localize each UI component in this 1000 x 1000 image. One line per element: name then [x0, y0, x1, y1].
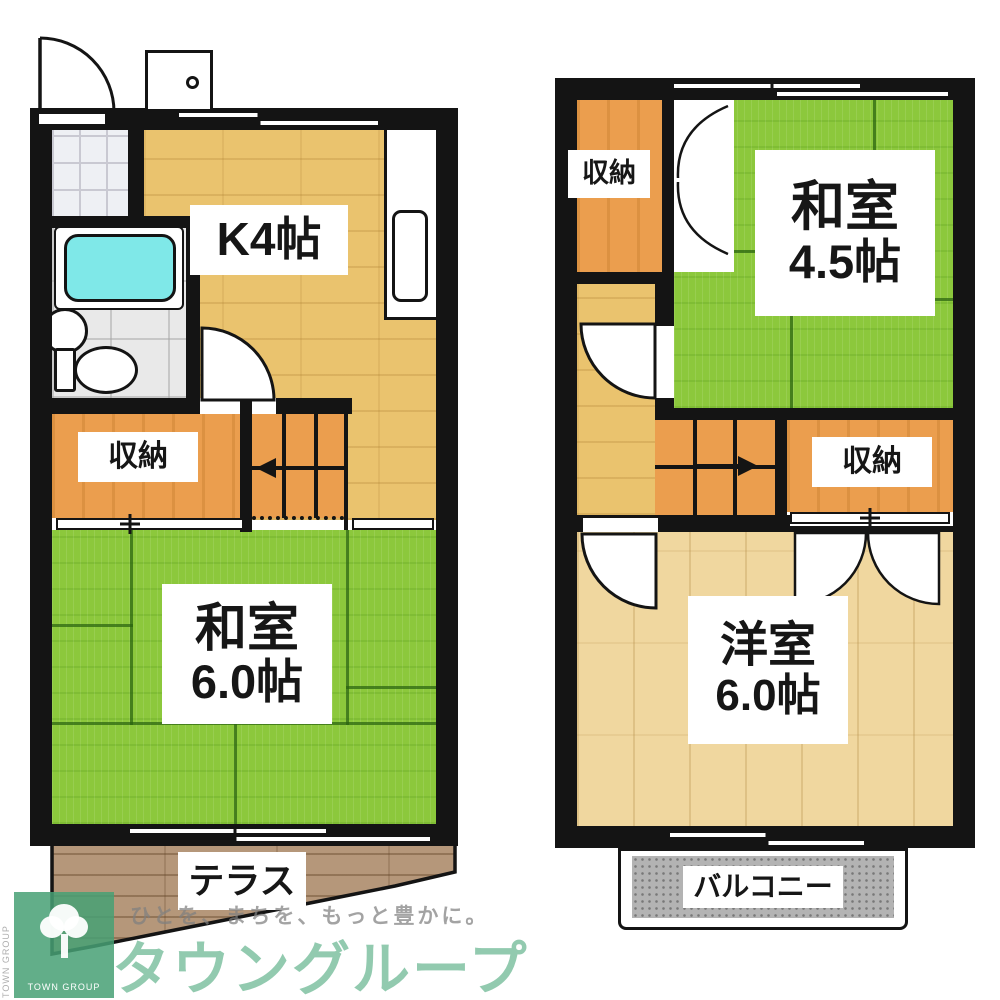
- watermark-logo-caption: TOWN GROUP: [14, 982, 114, 992]
- terrace-label-text: テラス: [188, 862, 295, 901]
- window-center-tick: [225, 827, 245, 845]
- entrance-door-swing-arc: [40, 38, 114, 112]
- label-storage-2f-upper: 収納: [568, 150, 650, 198]
- watermark-side-text: TOWN GROUP: [1, 912, 11, 998]
- watermark-brand: タウングループ: [112, 922, 529, 1000]
- closet-double-door-arcs: [678, 106, 728, 254]
- hallway-door-swing-arc: [581, 324, 655, 398]
- tatami-2f-name-text: 和室: [791, 178, 899, 236]
- tatami-2f-size-text: 4.5帖: [789, 237, 901, 288]
- window-center-tick: [762, 80, 782, 100]
- storage-2f-side-label-text: 収納: [842, 446, 902, 478]
- storage-2f-upper-label-text: 収納: [582, 159, 636, 188]
- stairs-1f-arrow-head-icon: [256, 458, 276, 478]
- window-center-tick: [120, 514, 140, 534]
- storage-1f-label-text: 収納: [108, 441, 168, 473]
- window-center-tick: [249, 109, 269, 129]
- bathroom-door-swing-arc: [202, 328, 274, 400]
- label-balcony: バルコニー: [683, 866, 843, 908]
- tatami-1f-size-text: 6.0帖: [191, 657, 303, 708]
- window-center-tick: [860, 508, 880, 528]
- label-storage-2f-side: 収納: [812, 437, 932, 487]
- western-size-text: 6.0帖: [715, 672, 820, 720]
- label-western: 洋室 6.0帖: [688, 596, 848, 744]
- label-storage-1f: 収納: [78, 432, 198, 482]
- western-closet-door-arc: [795, 533, 866, 604]
- label-tatami-1f: 和室 6.0帖: [162, 584, 332, 724]
- tree-logo-icon: [40, 904, 88, 962]
- kitchen-label-text: K4帖: [217, 215, 322, 265]
- western-name-text: 洋室: [720, 620, 816, 672]
- western-room-door-swing-arc: [582, 534, 656, 608]
- western-closet-door-arc: [868, 533, 939, 604]
- tatami-1f-name-text: 和室: [195, 601, 299, 657]
- side-text: TOWN GROUP: [1, 925, 11, 998]
- floor-plan-canvas: K4帖 収納 和室 6.0帖 テラス 収納 和室 4.5帖 収納 洋室 6.0帖…: [0, 0, 1000, 1000]
- stairs-2f-arrow-head-icon: [738, 456, 758, 476]
- watermark-brand-text: タウングループ: [112, 937, 529, 1000]
- label-kitchen: K4帖: [190, 205, 348, 275]
- balcony-label-text: バルコニー: [693, 872, 832, 902]
- label-tatami-2f: 和室 4.5帖: [755, 150, 935, 316]
- logo-caption-text: TOWN GROUP: [28, 982, 101, 992]
- window-center-tick: [757, 830, 777, 848]
- watermark-logo-box: TOWN GROUP: [14, 892, 114, 998]
